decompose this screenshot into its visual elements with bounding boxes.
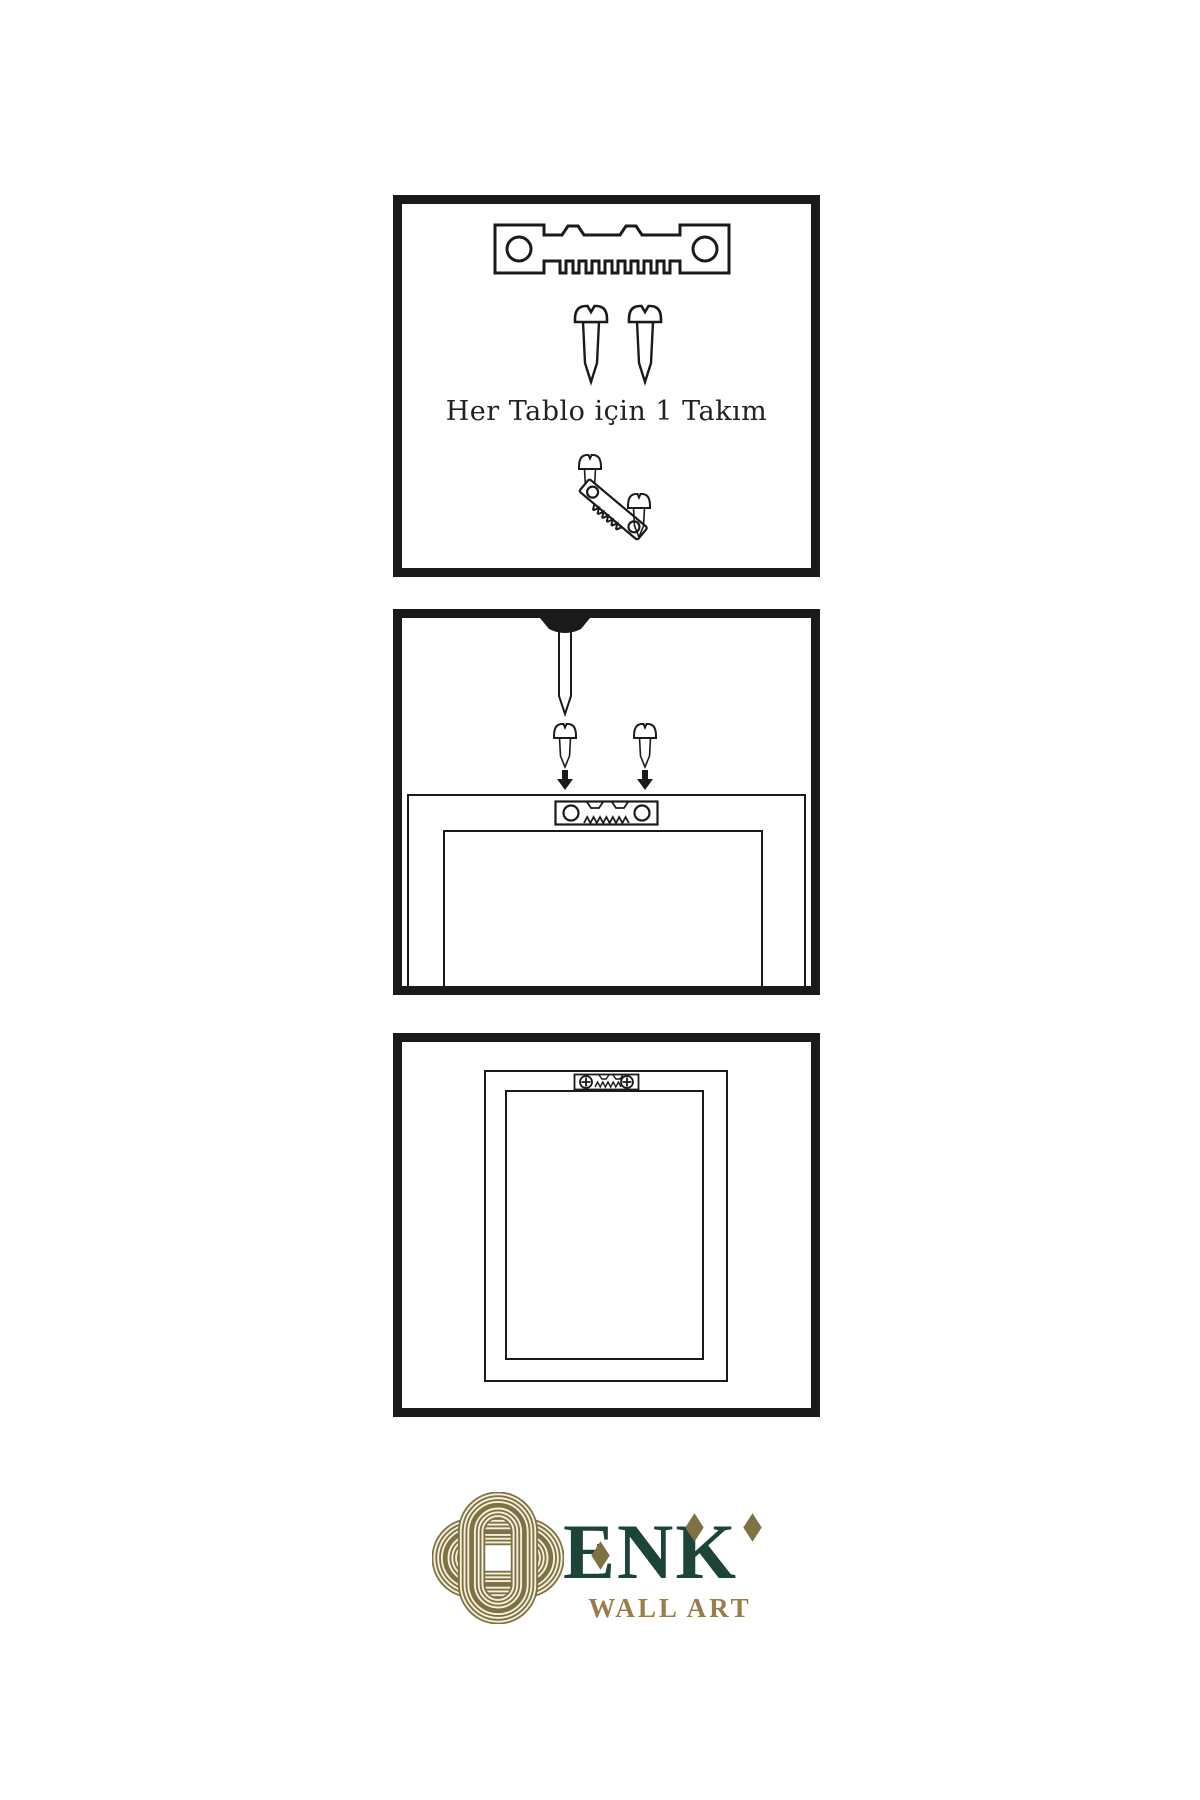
screw-dark-icon [552, 721, 578, 771]
panel-wall-installation [393, 609, 820, 995]
sawtooth-hanger-icon [554, 800, 659, 826]
nail-icon [540, 618, 590, 718]
arrow-down-icon [555, 770, 575, 790]
mini-assembly [562, 444, 692, 564]
screw-icon [572, 301, 610, 389]
frame-inner-outline [443, 830, 763, 990]
screw-icon [626, 301, 664, 389]
kit-caption: Her Tablo için 1 Takım [402, 396, 811, 427]
sawtooth-hanger-mounted-icon [573, 1073, 640, 1091]
instruction-sheet: Her Tablo için 1 Takım [0, 0, 1200, 1800]
screw-dark-icon [632, 721, 658, 771]
knot-logo-icon [432, 1492, 564, 1624]
screw-dark-icon [626, 491, 652, 541]
sawtooth-hanger-icon [492, 220, 732, 278]
panel-hanging-frame [393, 1033, 820, 1417]
frame-mat-outline [505, 1090, 704, 1360]
arrow-down-icon [635, 770, 655, 790]
brand-tagline: WALL ART [560, 1593, 780, 1624]
frame-outline [484, 1070, 728, 1382]
panel-hardware-kit: Her Tablo için 1 Takım [393, 195, 820, 577]
